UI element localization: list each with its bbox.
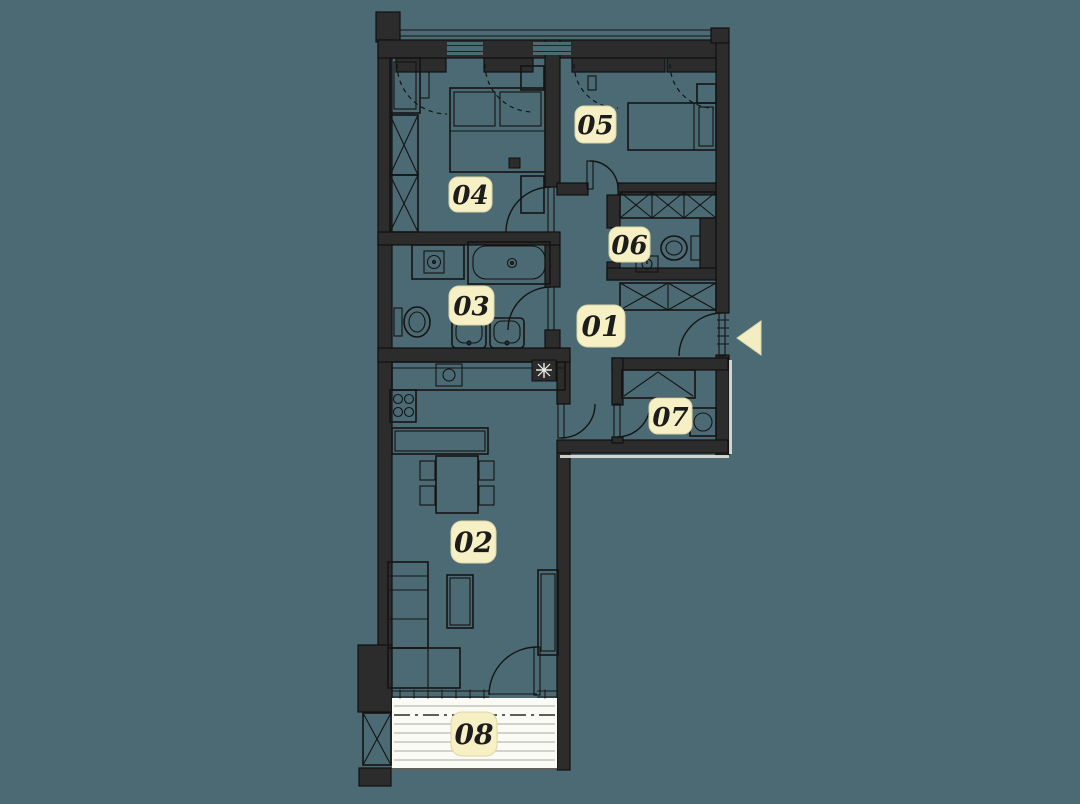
room-label-06: 06	[609, 227, 650, 262]
window-glass	[447, 42, 483, 55]
window-sill	[572, 58, 665, 72]
room-label-08-text: 08	[455, 718, 494, 751]
room-label-03: 03	[449, 286, 494, 325]
plant-icon	[532, 360, 556, 381]
room-label-02-text: 02	[454, 526, 493, 559]
room-label-05-text: 05	[577, 111, 613, 141]
room-label-05: 05	[575, 106, 616, 143]
room-label-01: 01	[577, 305, 625, 347]
floor-plan-page: 01 02 03 04 05 06 07 08	[0, 0, 1080, 804]
room-label-03-text: 03	[453, 292, 489, 322]
room-label-07-text: 07	[652, 403, 688, 433]
room-label-04: 04	[449, 177, 492, 212]
floor-plan: 01 02 03 04 05 06 07 08	[0, 0, 1080, 804]
room-label-01-text: 01	[582, 310, 621, 343]
window-glass	[533, 42, 571, 55]
window-sill	[396, 58, 446, 72]
room-label-07: 07	[649, 398, 692, 434]
room-label-06-text: 06	[611, 231, 647, 261]
window-sill	[667, 58, 716, 72]
room-label-04-text: 04	[452, 181, 488, 211]
room-label-08: 08	[451, 712, 497, 756]
window-sill	[484, 58, 533, 72]
room-label-02: 02	[451, 521, 496, 563]
balcony-foot-block	[359, 768, 391, 786]
